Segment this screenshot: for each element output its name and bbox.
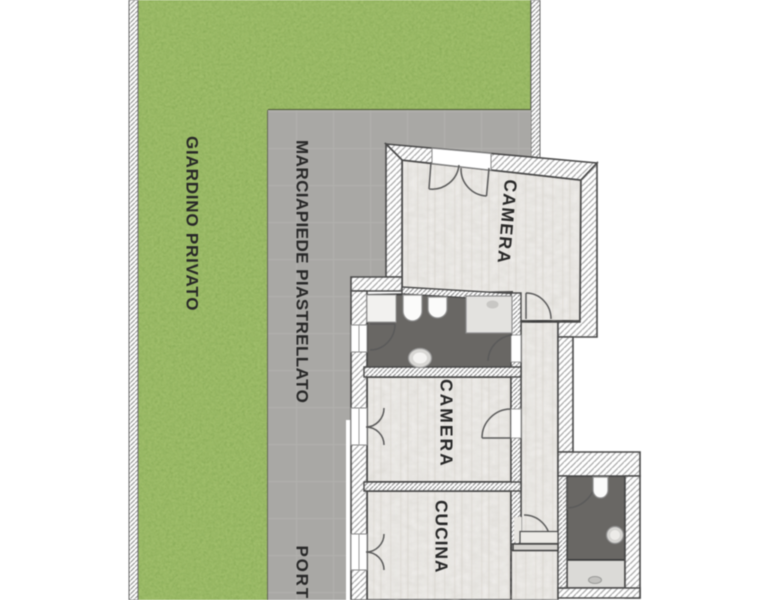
svg-text:CAMERA: CAMERA (437, 379, 457, 468)
svg-text:PORTICO: PORTICO (293, 546, 312, 600)
svg-text:MARCIAPIEDE PIASTRELLATO: MARCIAPIEDE PIASTRELLATO (293, 140, 312, 403)
svg-text:GIARDINO PRIVATO: GIARDINO PRIVATO (183, 136, 202, 311)
svg-text:CUCINA: CUCINA (432, 500, 452, 573)
